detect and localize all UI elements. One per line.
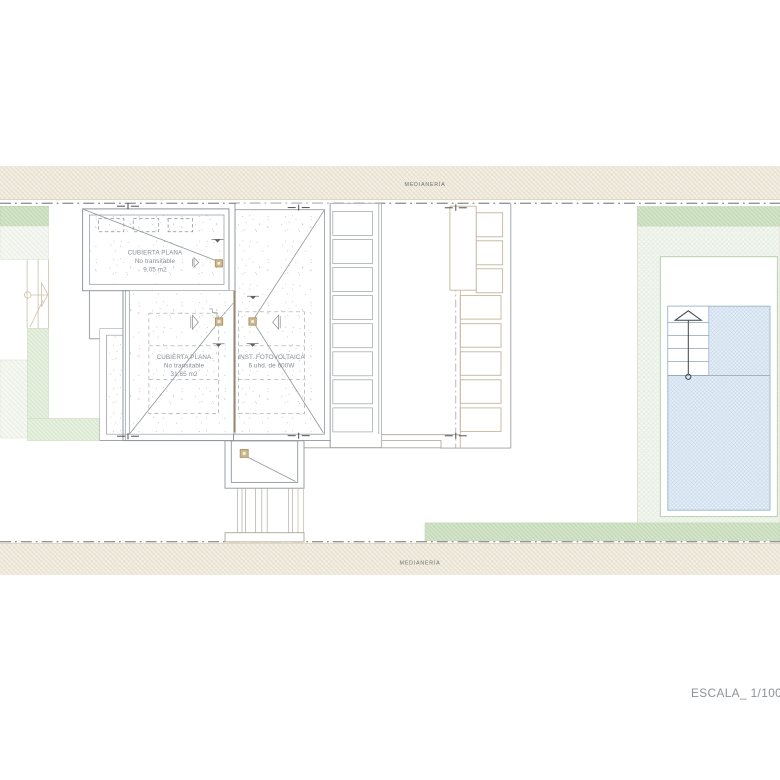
svg-text:No transitable: No transitable <box>135 258 176 265</box>
svg-text:31,65 m2: 31,65 m2 <box>170 371 197 378</box>
svg-text:9,05 m2: 9,05 m2 <box>143 266 167 273</box>
svg-text:ESCALA_ 1/100: ESCALA_ 1/100 <box>691 686 780 700</box>
svg-text:CUBIERTA PLANA: CUBIERTA PLANA <box>157 354 212 361</box>
svg-text:MEDIANERÍA: MEDIANERÍA <box>399 560 440 567</box>
svg-text:No transitable: No transitable <box>164 362 205 369</box>
svg-text:MEDIANERÍA: MEDIANERÍA <box>404 181 445 188</box>
svg-text:6 uhd. de 600W: 6 uhd. de 600W <box>249 363 295 370</box>
svg-text:INST. FOTOVOLTAICA: INST. FOTOVOLTAICA <box>238 354 305 361</box>
svg-text:CUBIERTA PLANA: CUBIERTA PLANA <box>128 250 183 257</box>
